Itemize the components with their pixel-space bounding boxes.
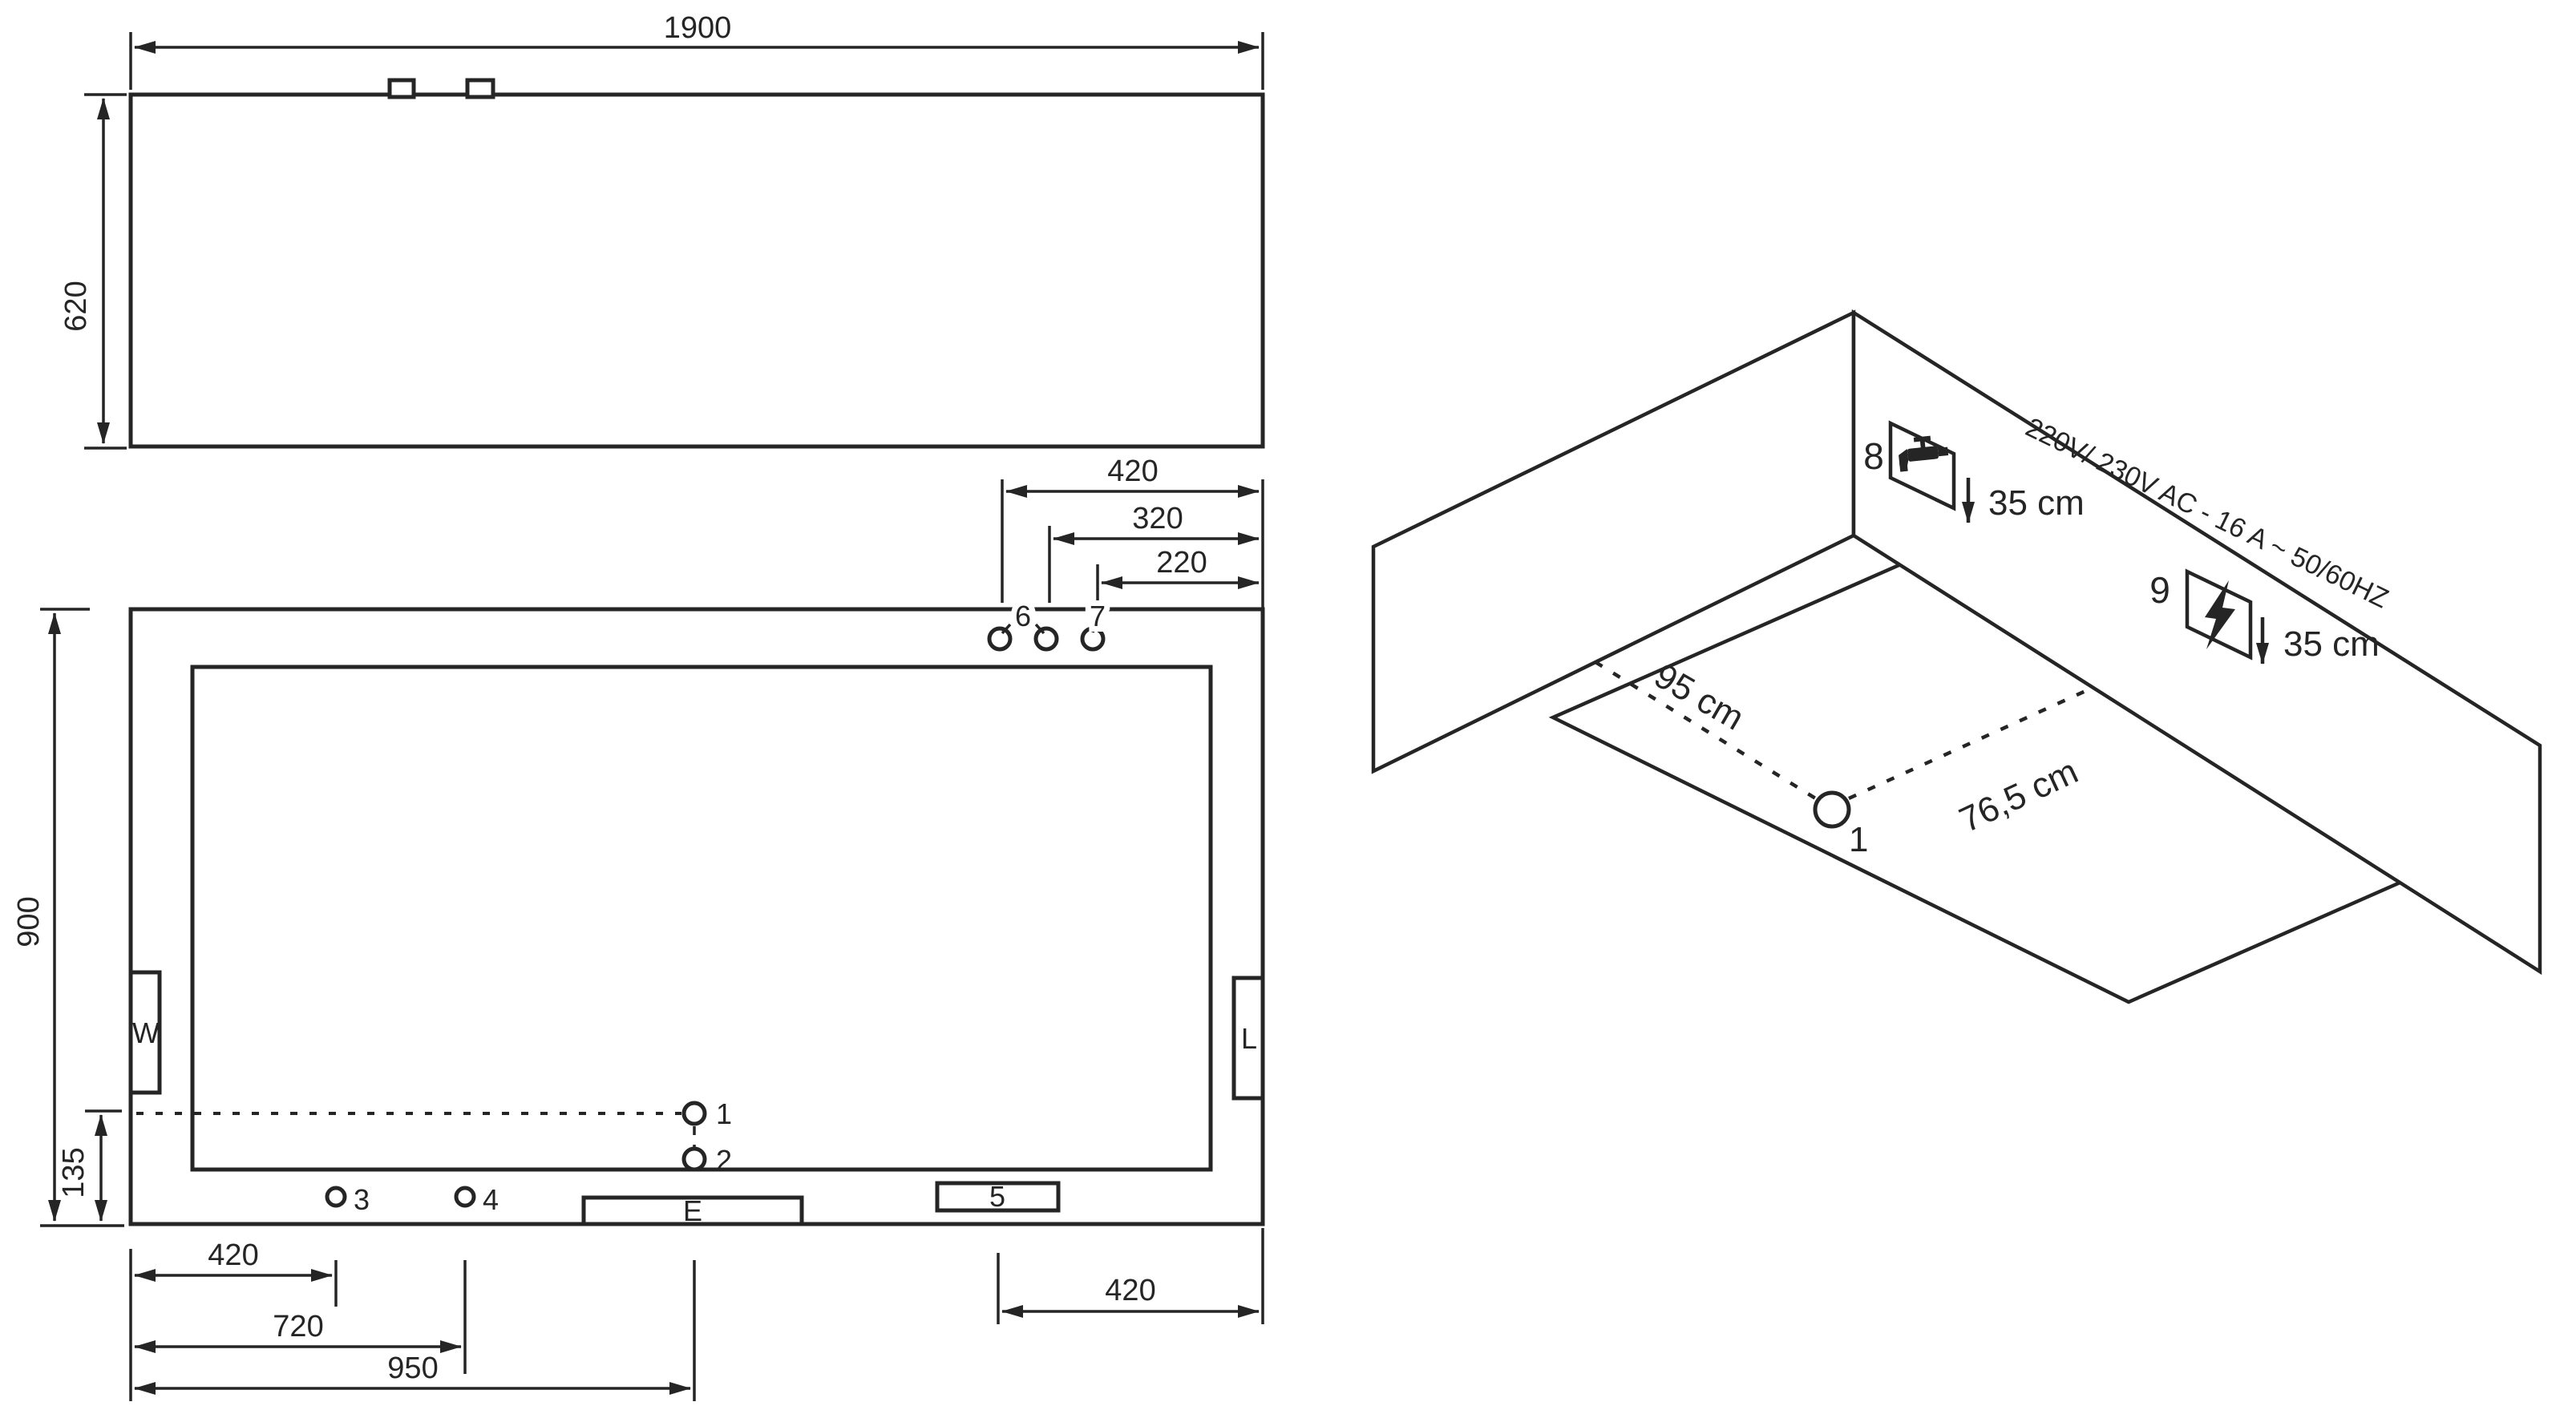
faucet-drop-label: 35 cm	[1988, 483, 2085, 523]
dim-label-bot-950: 950	[387, 1351, 438, 1385]
box-5-label: 5	[989, 1180, 1005, 1213]
hole-label-7: 7	[1090, 600, 1106, 632]
dim-label-620: 620	[59, 281, 93, 331]
hole-label-6: 6	[1015, 600, 1031, 632]
power-drop-label: 35 cm	[2283, 624, 2380, 664]
technical-drawing-page: 1900 620 420 320 220	[0, 0, 2576, 1406]
dim-label-top-220: 220	[1156, 546, 1207, 580]
dim-label-bot-right-420: 420	[1105, 1274, 1155, 1307]
iso-hole-label-1: 1	[1849, 820, 1868, 859]
plan-outer-outline	[131, 609, 1263, 1224]
front-panel-outline	[131, 95, 1263, 446]
front-view: 1900 620	[59, 11, 1263, 448]
dim-label-bot-720: 720	[273, 1310, 323, 1343]
dim-label-top-420: 420	[1107, 455, 1158, 488]
water-connection-label: W	[132, 1016, 160, 1049]
hole-label-1: 1	[716, 1097, 732, 1130]
faucet-number: 8	[1863, 435, 1884, 477]
dim-bottom-chain: 420 720 950 420	[131, 1228, 1263, 1401]
iso-hole-1	[1815, 793, 1849, 826]
dim-label-top-320: 320	[1132, 502, 1183, 535]
dim-label-bot-420: 420	[208, 1238, 258, 1272]
dim-top-chain: 420 320 220	[1002, 455, 1263, 609]
dim-label-900: 900	[12, 896, 46, 947]
dim-label-135: 135	[57, 1147, 91, 1198]
isometric-view: 95 cm 76,5 cm 1 8 35 cm 220V/ 230V AC - …	[1373, 313, 2540, 1002]
hole-label-2: 2	[716, 1144, 732, 1177]
dim-left-chain: 900 135	[12, 609, 124, 1226]
dim-height-620: 620	[59, 95, 127, 448]
top-knob-left	[390, 80, 414, 97]
plan-view: 420 320 220 6 7 W L 1 2	[12, 455, 1263, 1401]
drain-label: E	[683, 1194, 702, 1227]
top-knob-right	[467, 80, 493, 97]
technical-drawing: 1900 620 420 320 220	[0, 0, 2576, 1406]
power-number: 9	[2149, 569, 2170, 611]
power-connection-label: L	[1241, 1022, 1257, 1055]
dim-label-1900: 1900	[664, 11, 732, 45]
hole-label-3: 3	[354, 1183, 370, 1216]
hole-label-4: 4	[483, 1183, 499, 1216]
dim-width-1900: 1900	[131, 11, 1263, 90]
